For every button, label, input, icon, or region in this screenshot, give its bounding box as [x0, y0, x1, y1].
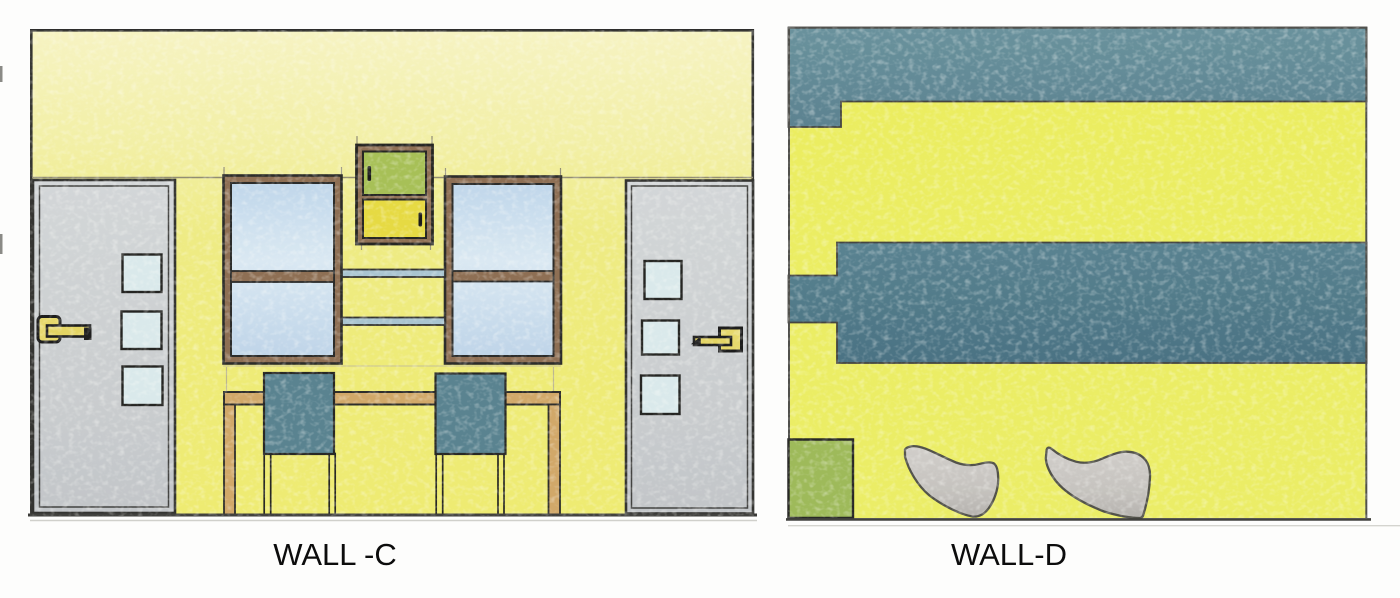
svg-text:WALL -C: WALL -C	[273, 537, 396, 572]
svg-text:WALL-D: WALL-D	[951, 537, 1067, 572]
